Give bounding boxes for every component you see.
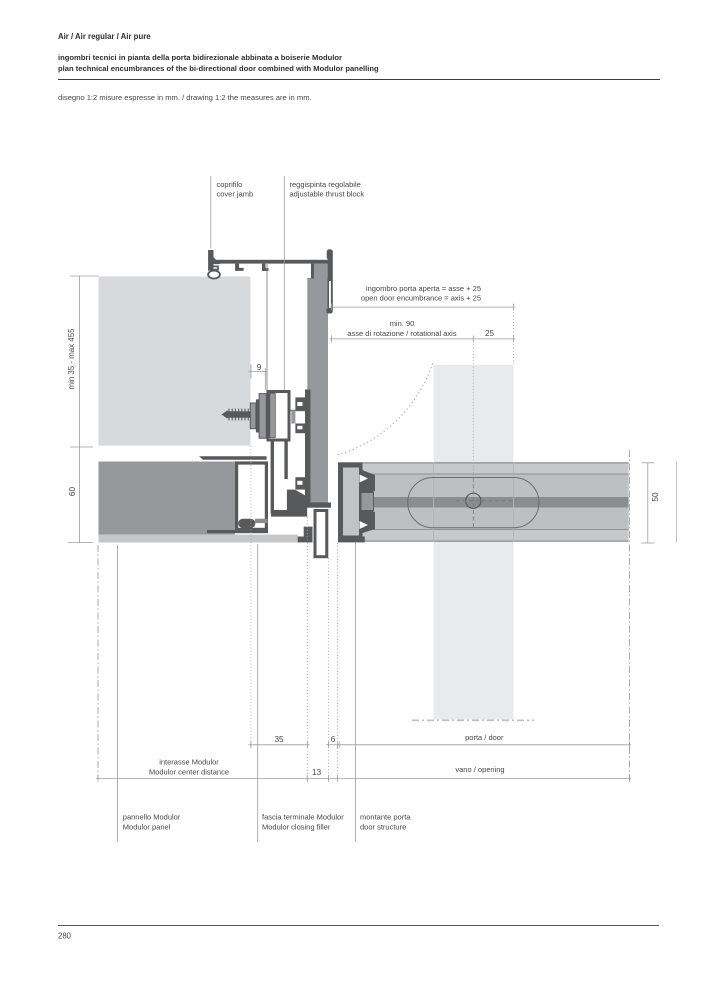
svg-text:Modulor center distance: Modulor center distance: [149, 768, 229, 777]
svg-text:ingombri tecnici in pianta del: ingombri tecnici in pianta della porta b…: [58, 53, 342, 62]
svg-text:coprifilo: coprifilo: [217, 180, 243, 189]
svg-text:6: 6: [331, 735, 336, 744]
svg-text:min 35 - max 455: min 35 - max 455: [67, 328, 76, 390]
svg-text:50: 50: [651, 492, 660, 502]
svg-text:asse di rotazione / rotational: asse di rotazione / rotational axis: [347, 329, 456, 338]
svg-text:fascia terminale Modulor: fascia terminale Modulor: [262, 813, 344, 822]
svg-text:cover jamb: cover jamb: [217, 190, 254, 199]
svg-text:reggispinta regolabile: reggispinta regolabile: [290, 180, 361, 189]
svg-text:60: 60: [68, 487, 77, 497]
svg-text:13: 13: [312, 768, 322, 777]
svg-text:ingombro porta aperta = asse +: ingombro porta aperta = asse + 25: [366, 284, 481, 293]
svg-text:Air / Air regular / Air pure: Air / Air regular / Air pure: [58, 32, 151, 41]
svg-text:door structure: door structure: [360, 823, 406, 832]
svg-text:porta / door: porta / door: [465, 733, 504, 742]
svg-text:25: 25: [485, 329, 495, 338]
svg-text:35: 35: [274, 735, 284, 744]
svg-text:montante porta: montante porta: [360, 813, 411, 822]
svg-text:plan technical encumbrances of: plan technical encumbrances of the bi-di…: [58, 64, 379, 73]
svg-text:interasse Modulor: interasse Modulor: [159, 757, 219, 766]
svg-text:vano / opening: vano / opening: [455, 765, 504, 774]
svg-text:min. 90: min. 90: [390, 319, 415, 328]
svg-text:Modulor closing filler: Modulor closing filler: [262, 823, 331, 832]
svg-text:disegno 1:2 misure espresse in: disegno 1:2 misure espresse in mm. / dra…: [58, 93, 312, 102]
svg-text:280: 280: [58, 932, 72, 941]
svg-text:9: 9: [257, 363, 262, 372]
svg-text:open door encumbrance = axis +: open door encumbrance = axis + 25: [361, 294, 481, 303]
svg-text:Modulor panel: Modulor panel: [123, 823, 171, 832]
svg-text:pannello Modulor: pannello Modulor: [123, 813, 181, 822]
svg-text:adjustable thrust block: adjustable thrust block: [290, 190, 365, 199]
